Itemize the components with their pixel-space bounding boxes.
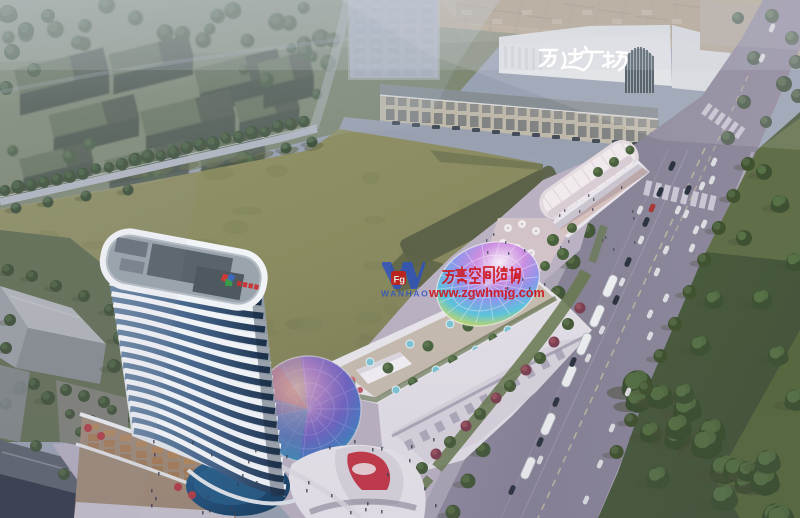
svg-text:Fg: Fg [394, 275, 406, 286]
svg-text:www.zgwhmjg.com: www.zgwhmjg.com [428, 286, 545, 300]
svg-text:WANHAO: WANHAO [381, 289, 429, 299]
